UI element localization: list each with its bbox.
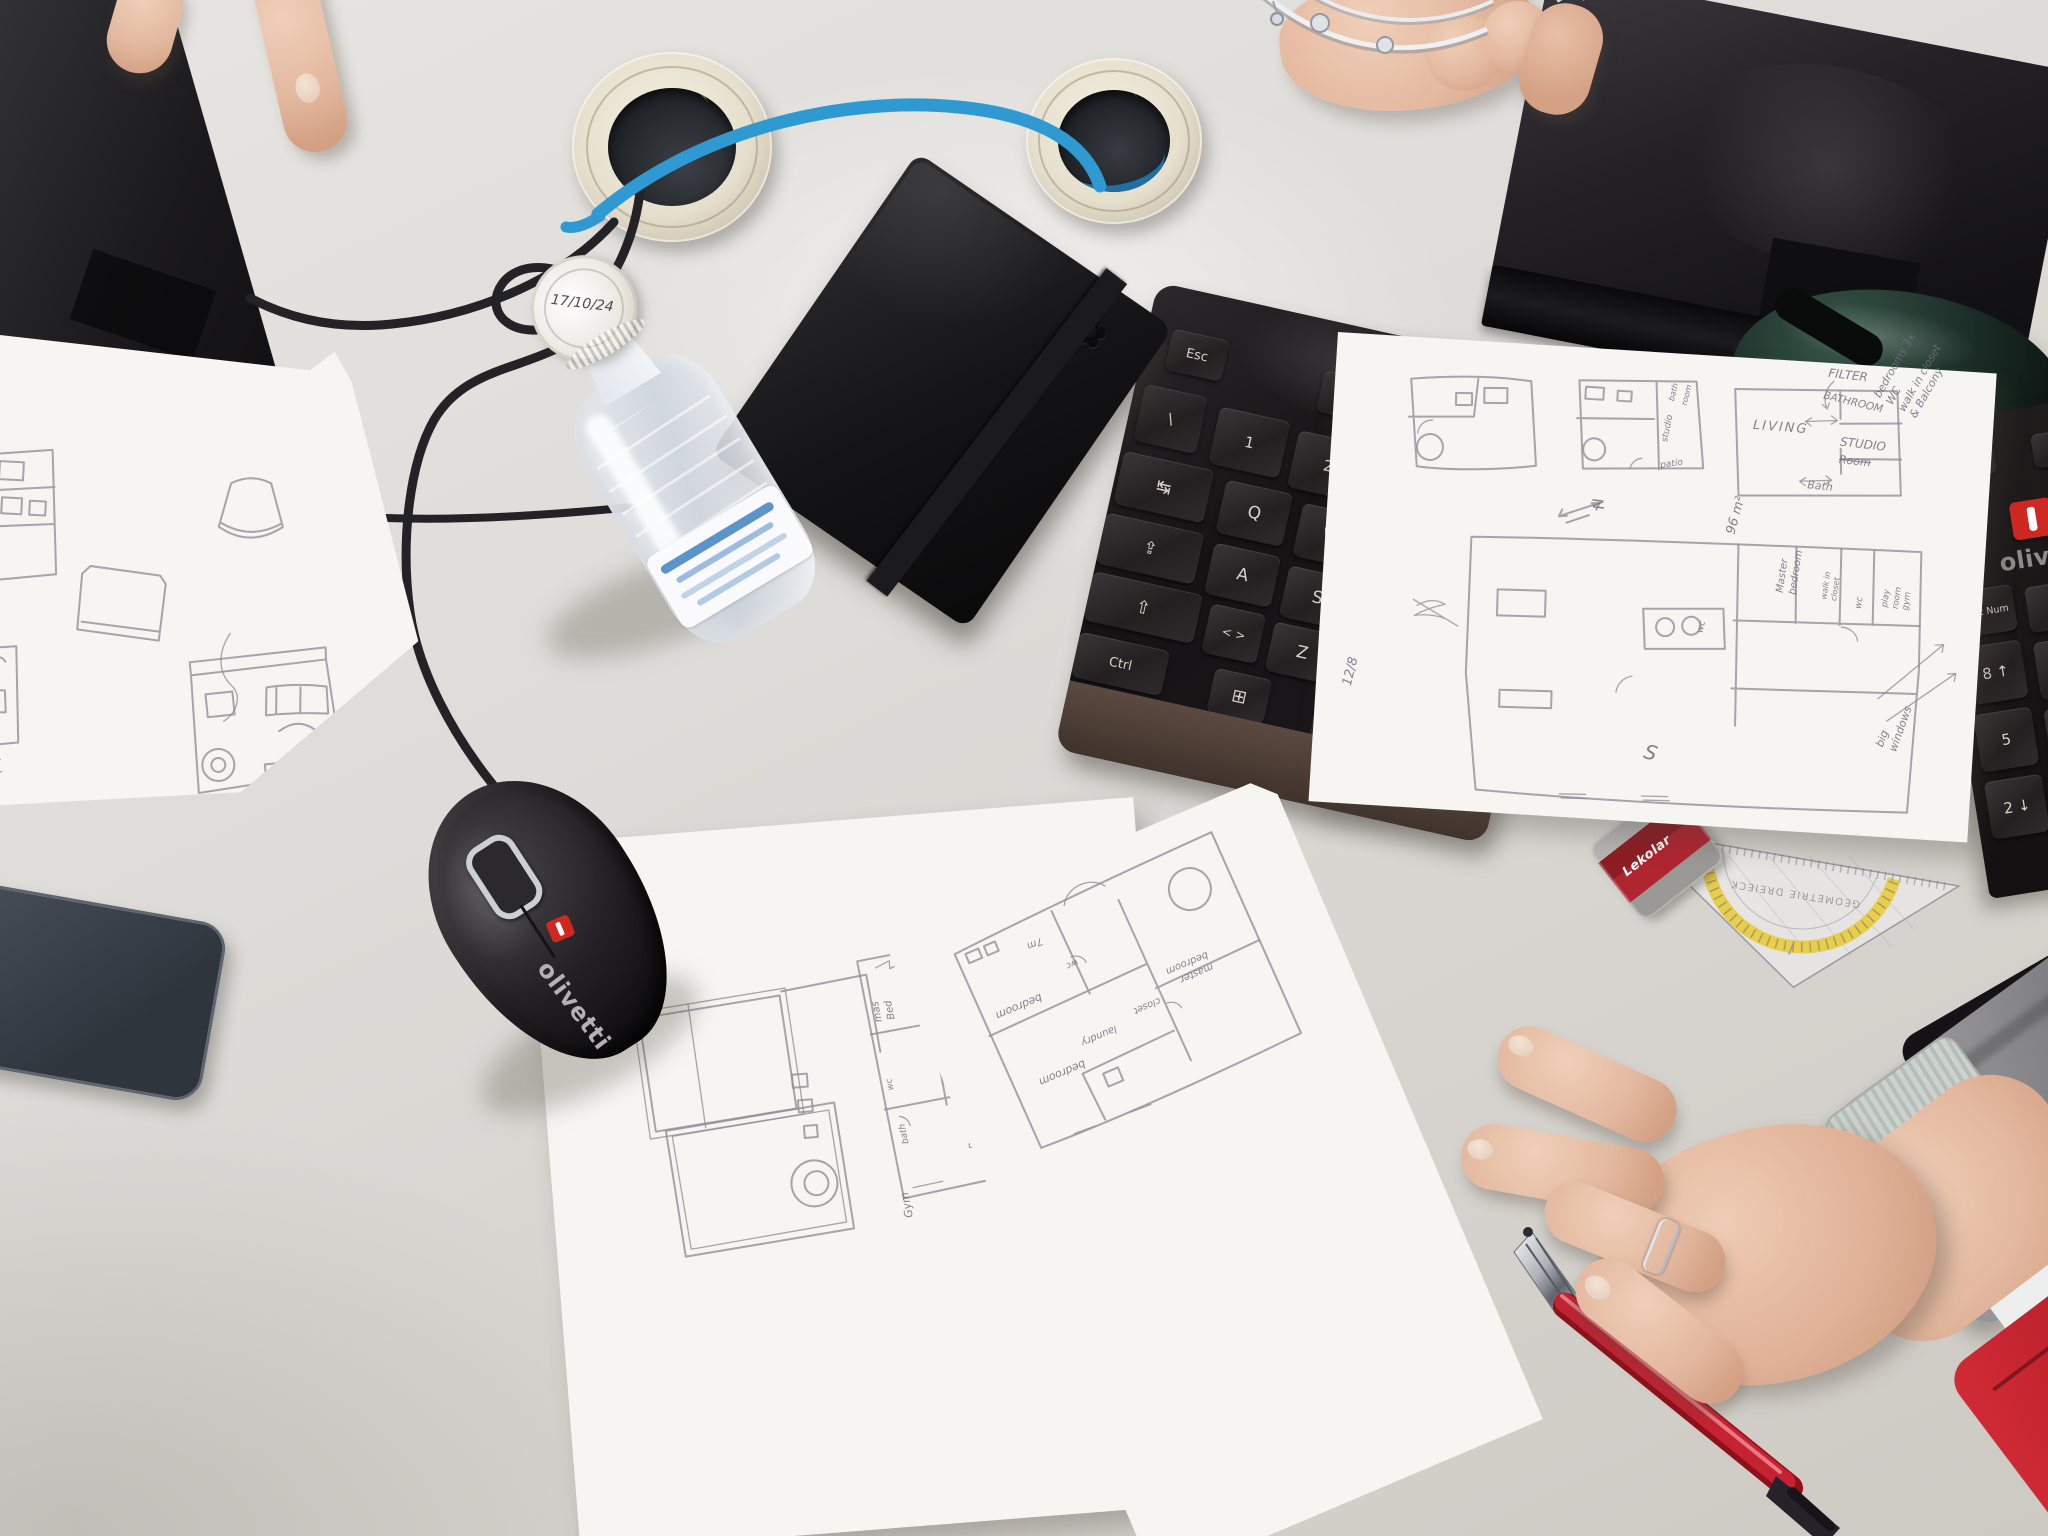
- crossed-scribble: [1412, 599, 1459, 626]
- charm-dangle-icon: [1271, 13, 1283, 25]
- charm-bead-icon: [1377, 37, 1393, 53]
- label-wc: wc: [1854, 596, 1867, 610]
- label-bath: Bath: [1807, 478, 1834, 494]
- label-compass-n: N: [1588, 498, 1608, 511]
- key-num9: 9: [2033, 634, 2048, 700]
- bracelets: [1225, 0, 1625, 150]
- label-play-room-gym: play room gym: [1880, 585, 1915, 612]
- key-backslash: \: [1133, 384, 1208, 454]
- blue-network-cable: [598, 105, 1100, 214]
- wardrobe-sketch: [0, 644, 23, 751]
- thumbnail: [1580, 1270, 1616, 1305]
- indicator-key-a: A: [2030, 428, 2048, 469]
- plan-a: [1406, 372, 1542, 474]
- pen-point: [1523, 1227, 1533, 1237]
- label-wc2: wc: [884, 1078, 897, 1092]
- chain-ring: [1641, 1216, 1682, 1276]
- key-slash: /: [2024, 579, 2048, 634]
- floorplan-paper-top-right: FILTER BATHROOM LIVING STUDIO Room Bath …: [1308, 332, 1996, 843]
- box-sketch: [77, 565, 167, 640]
- key-num5: 5: [1973, 706, 2039, 772]
- blue-cable-stub: [566, 216, 600, 227]
- key-q: Q: [1215, 480, 1293, 547]
- cup-sketch: [218, 477, 285, 540]
- fingernail: [293, 71, 323, 106]
- squiggle-sketch: [218, 633, 241, 722]
- key-tab: ↹: [1113, 451, 1215, 524]
- hand-top-right: [1225, 0, 1625, 150]
- olivetti-logo-icon: [2008, 497, 2048, 541]
- key-esc: Esc: [1164, 328, 1230, 382]
- eraser-brand-label: Lekolar: [1620, 833, 1674, 880]
- plan-d: [1455, 524, 1963, 822]
- key-caps: ⇪: [1096, 512, 1205, 584]
- olivetti-logo-bar: [2026, 506, 2038, 531]
- key-angle: < >: [1201, 603, 1266, 664]
- charm-bead-icon: [1311, 14, 1329, 32]
- finger-ring: [1557, 0, 1585, 1]
- key-a: A: [1204, 543, 1282, 608]
- key-num6: 6: [2043, 701, 2048, 767]
- keyboard-brand-label: olivetti: [1998, 534, 2048, 577]
- key-1: 1: [1208, 406, 1291, 478]
- fingernail: [1505, 1031, 1537, 1060]
- desk-scene-photo: FUJITSU Esc F1 F2 \ 1 2 3 ↹ Q W ⇪ A S ⇧ …: [0, 0, 2048, 1536]
- olivetti-logo-bar: [555, 921, 565, 936]
- fingernail: [1466, 1137, 1495, 1161]
- label-walkin-closet: walk in closet: [1819, 571, 1843, 602]
